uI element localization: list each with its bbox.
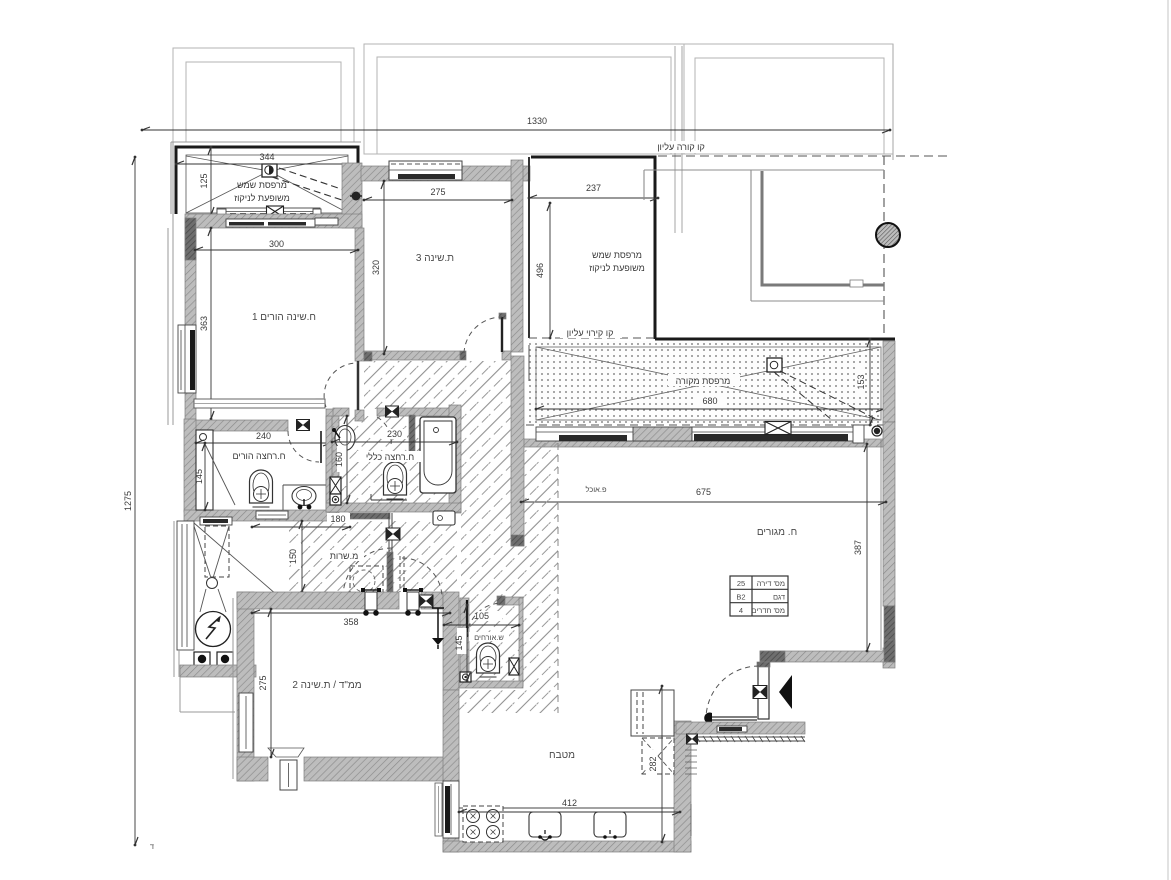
svg-text:240: 240 <box>256 431 271 441</box>
svg-text:363: 363 <box>199 316 209 331</box>
svg-text:25: 25 <box>737 579 745 588</box>
svg-text:ש.אורחים: ש.אורחים <box>474 633 504 642</box>
svg-text:282: 282 <box>648 756 658 771</box>
svg-text:125: 125 <box>199 173 209 188</box>
svg-text:105: 105 <box>474 611 489 621</box>
svg-text:675: 675 <box>696 487 711 497</box>
svg-text:משופעת לניקוז: משופעת לניקוז <box>234 193 290 203</box>
svg-text:1330: 1330 <box>527 116 547 126</box>
svg-text:ממ"ד / ת.שינה 2: ממ"ד / ת.שינה 2 <box>292 680 361 691</box>
svg-text:680: 680 <box>702 396 717 406</box>
svg-text:145: 145 <box>194 469 204 484</box>
svg-text:358: 358 <box>343 617 358 627</box>
svg-text:1275: 1275 <box>123 491 133 511</box>
svg-text:מרפסת שמש: מרפסת שמש <box>237 180 287 190</box>
svg-text:מ.שרות: מ.שרות <box>330 551 359 561</box>
svg-text:180: 180 <box>330 514 345 524</box>
svg-text:מרפסת שמש: מרפסת שמש <box>592 250 642 260</box>
svg-text:275: 275 <box>430 187 445 197</box>
svg-text:מטבח: מטבח <box>549 750 575 761</box>
svg-text:ח.שינה הורים 1: ח.שינה הורים 1 <box>252 312 316 323</box>
svg-text:275: 275 <box>258 675 268 690</box>
svg-text:387: 387 <box>853 540 863 555</box>
svg-text:B2: B2 <box>736 593 745 602</box>
svg-text:300: 300 <box>269 239 284 249</box>
svg-text:מס' דירה: מס' דירה <box>757 579 785 588</box>
svg-text:ד: ד <box>150 842 154 851</box>
svg-text:ת.שינה 3: ת.שינה 3 <box>416 253 454 264</box>
svg-text:מס' חדרים: מס' חדרים <box>751 606 785 615</box>
svg-text:145: 145 <box>454 635 464 650</box>
svg-text:320: 320 <box>371 260 381 275</box>
svg-text:230: 230 <box>387 429 402 439</box>
svg-text:מרפסת מקורה: מרפסת מקורה <box>676 376 731 386</box>
svg-text:496: 496 <box>535 263 545 278</box>
svg-text:ח. מגורים: ח. מגורים <box>757 527 797 538</box>
svg-text:150: 150 <box>288 549 298 564</box>
svg-text:קו קורה עליון: קו קורה עליון <box>657 142 705 152</box>
svg-text:פ.אוכל: פ.אוכל <box>585 485 607 494</box>
svg-text:ח.רחצה הורים: ח.רחצה הורים <box>232 451 285 461</box>
svg-text:ח.רחצה כללי: ח.רחצה כללי <box>366 452 414 462</box>
svg-text:דגם: דגם <box>773 593 785 602</box>
svg-text:משופעת לניקוז: משופעת לניקוז <box>589 263 645 273</box>
svg-text:344: 344 <box>259 152 274 162</box>
svg-text:412: 412 <box>562 798 577 808</box>
svg-text:153: 153 <box>856 374 866 389</box>
svg-text:237: 237 <box>586 183 601 193</box>
svg-text:4: 4 <box>739 606 743 615</box>
svg-text:קו קירוי עליון: קו קירוי עליון <box>567 328 614 338</box>
svg-text:160: 160 <box>334 452 344 467</box>
